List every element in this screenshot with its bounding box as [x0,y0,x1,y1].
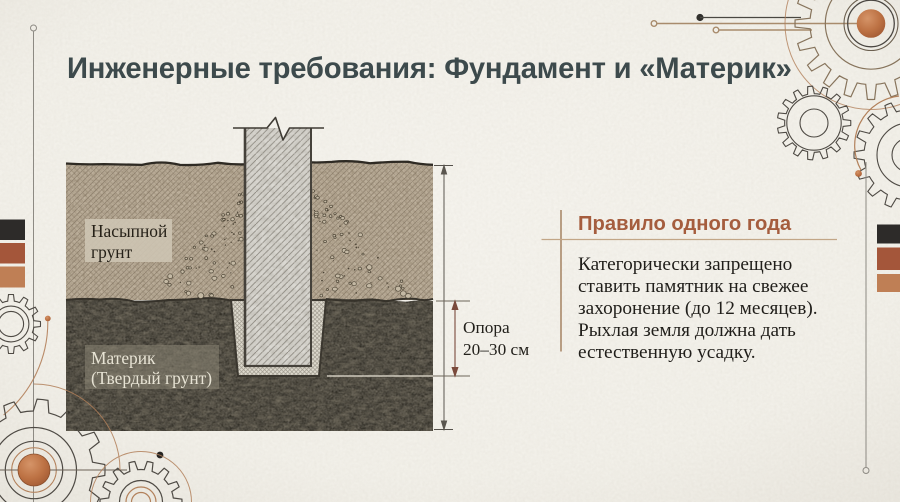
svg-text:Правило одного года: Правило одного года [578,213,792,235]
svg-text:Инженерные требования: Фундаме: Инженерные требования: Фундамент и «Мате… [67,53,792,85]
